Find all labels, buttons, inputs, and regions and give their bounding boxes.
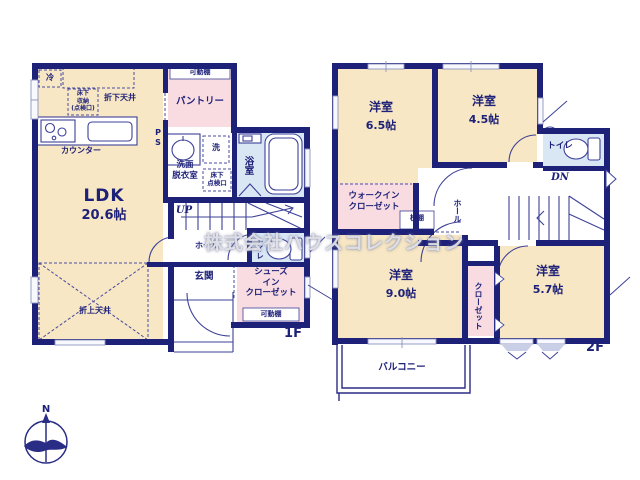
label-room65: 洋室: [355, 100, 407, 115]
label-washer: 洗: [207, 143, 225, 153]
toilet-2f-icon: [588, 138, 600, 160]
label-ldk: LDK: [72, 186, 136, 207]
label-shoes-closet: シューズ イン クローゼット: [240, 267, 302, 299]
label-up: UP: [173, 205, 195, 218]
label-floor-1f: 1F: [278, 326, 308, 342]
label-fridge: 冷: [41, 73, 59, 83]
compass-icon: [24, 413, 67, 463]
label-pantry: パントリー: [170, 96, 230, 108]
label-pillow-shelf: 枕棚: [402, 214, 432, 223]
label-pantry-shelf: 可動棚: [172, 68, 228, 77]
label-ldk-size: 20.6帖: [72, 208, 136, 224]
label-room57: 洋室: [522, 264, 574, 279]
label-floor-2f: 2F: [580, 340, 610, 356]
label-room90: 洋室: [375, 268, 427, 283]
vent-glyphs: [502, 345, 564, 359]
label-dn: DN: [546, 172, 574, 185]
floorplan-page: 可動棚 パントリー 冷 床下 収納 (点検口) 折下天井 カウンター P S 洗…: [0, 0, 640, 480]
label-bathroom: 浴室: [243, 146, 253, 184]
label-compass-north: N: [39, 404, 53, 417]
label-washroom: 洗面 脱衣室: [168, 160, 202, 181]
label-closet: クローゼット: [474, 278, 482, 334]
label-raised-ceiling: 折上天井: [72, 306, 118, 316]
watermark: 株式会社ハウスコレクション: [204, 228, 436, 255]
label-pipe-space: P S: [153, 128, 163, 148]
label-toilet-2f: トイレ: [545, 141, 575, 152]
label-balcony: バルコニー: [370, 362, 434, 374]
label-room90-size: 9.0帖: [375, 287, 427, 301]
label-counter: カウンター: [56, 146, 106, 156]
label-genkan: 玄関: [186, 271, 222, 283]
kitchen-sink-icon: [88, 122, 132, 141]
entrance-porch: [174, 292, 233, 352]
label-sic-shelf: 可動棚: [248, 310, 294, 319]
label-wic: ウォークイン クローゼット: [336, 191, 412, 212]
label-lowered-ceiling: 折下天井: [99, 93, 141, 103]
label-room45-size: 4.5帖: [458, 113, 510, 127]
label-room45: 洋室: [458, 94, 510, 109]
label-floor-hatch: 床下 点検口: [204, 171, 230, 187]
label-room57-size: 5.7帖: [522, 283, 574, 297]
label-room65-size: 6.5帖: [355, 119, 407, 133]
label-floor-storage: 床下 収納 (点検口): [68, 90, 98, 113]
label-hall-2f: ホール: [453, 190, 461, 232]
